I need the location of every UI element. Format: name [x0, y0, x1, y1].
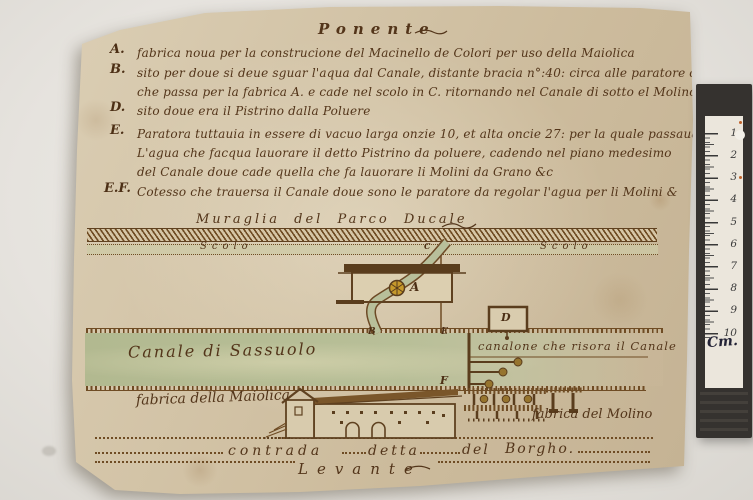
- photo-of-manuscript-plan: Ponente A.fabrica noua per la construcio…: [0, 0, 753, 500]
- ruler-unit-label: Cm.: [706, 333, 738, 351]
- plan-letter-c: C: [424, 241, 430, 251]
- legend-key: E.F.: [104, 181, 137, 196]
- legend-line-d: D.sito doue era il Pistrino dalla Poluer…: [110, 100, 371, 119]
- ruler-foot-gloss: [700, 392, 748, 434]
- legend-text: fabrica noua per la construcione del Mac…: [137, 46, 635, 60]
- legend-line-b2: che passa per la fabrica A. e cade nel s…: [110, 81, 753, 100]
- legend-key: B.: [110, 62, 137, 77]
- legend-text: sito per doue si deue sguar l'aqua dal C…: [137, 66, 753, 80]
- road-word-detta: detta: [368, 443, 420, 459]
- ruler-number-8: 8: [717, 282, 737, 294]
- legend-key: A.: [110, 42, 137, 57]
- label-canale-di-sassuolo: Canale di Sassuolo: [128, 339, 318, 361]
- legend-line-e3: del Canale doue cade quella che fa lauor…: [110, 161, 553, 180]
- legend-line-e2: L'agua che facqua lauorare il detto Pist…: [110, 142, 672, 161]
- plan-letter-b: B: [368, 327, 376, 337]
- label-scolo-right: Scolo: [540, 241, 593, 252]
- legend-text: del Canale doue cade quella che fa lauor…: [137, 165, 553, 179]
- label-canalone: canalone che risora il Canale: [478, 339, 677, 353]
- ruler-number-9: 9: [717, 304, 737, 316]
- ruler-number-3: 3: [717, 171, 737, 183]
- cm-ruler: 1 2 3 4 5 6 7 8 9 10 Cm.: [696, 84, 752, 438]
- plan-letter-a: A: [410, 280, 419, 294]
- ruler-number-1: 1: [717, 127, 737, 139]
- legend-text: sito doue era il Pistrino dalla Poluere: [137, 104, 371, 118]
- title-levante: Levante: [298, 460, 422, 478]
- manuscript-paper: Ponente A.fabrica noua per la construcio…: [0, 0, 753, 500]
- label-muraglia: Muraglia del Parco Ducale: [196, 212, 468, 227]
- legend-text: Paratora tuttauia in essere di vacuo lar…: [137, 127, 699, 141]
- road-word-contrada: contrada: [228, 443, 323, 459]
- ruler-number-6: 6: [717, 238, 737, 250]
- legend-text: L'agua che facqua lauorare il detto Pist…: [137, 146, 672, 160]
- legend-text: che passa per la fabrica A. e cade nel s…: [137, 85, 753, 99]
- road-word-borgho: Borgho.: [505, 441, 575, 457]
- ruler-number-5: 5: [717, 216, 737, 228]
- title-ponente: Ponente: [318, 20, 436, 38]
- legend-line-a: A.fabrica noua per la construcione del M…: [110, 42, 635, 61]
- ruler-number-7: 7: [717, 260, 737, 272]
- ruler-scale-strip: 1 2 3 4 5 6 7 8 9 10 Cm.: [705, 116, 743, 388]
- rust-speck: [739, 121, 742, 124]
- handwriting-layer: Ponente A.fabrica noua per la construcio…: [0, 0, 753, 500]
- legend-line-ef: E.F.Cotesso che trauersa il Canale doue …: [104, 181, 678, 200]
- legend-line-e1: E.Paratora tuttauia in essere di vacuo l…: [110, 123, 699, 142]
- legend-line-b1: B.sito per doue si deue sguar l'aqua dal…: [110, 62, 753, 81]
- label-fabrica-maiolica: fabrica della Maiolica: [136, 387, 290, 408]
- plan-letter-d: D: [501, 311, 511, 324]
- ruler-number-2: 2: [717, 149, 737, 161]
- rust-speck: [739, 176, 742, 179]
- road-word-del: del: [462, 442, 490, 458]
- paper-shadow-wrap: Ponente A.fabrica noua per la construcio…: [0, 0, 753, 500]
- label-fabrica-molino: fabrica del Molino: [532, 407, 652, 422]
- legend-key: E.: [110, 123, 137, 138]
- legend-key: D.: [110, 100, 137, 115]
- legend-text: Cotesso che trauersa il Canale doue sono…: [137, 185, 678, 199]
- plan-letter-f: F: [440, 374, 448, 387]
- plan-letter-e: E: [441, 327, 448, 337]
- ruler-number-4: 4: [717, 193, 737, 205]
- label-scolo-left: Scolo: [200, 241, 253, 252]
